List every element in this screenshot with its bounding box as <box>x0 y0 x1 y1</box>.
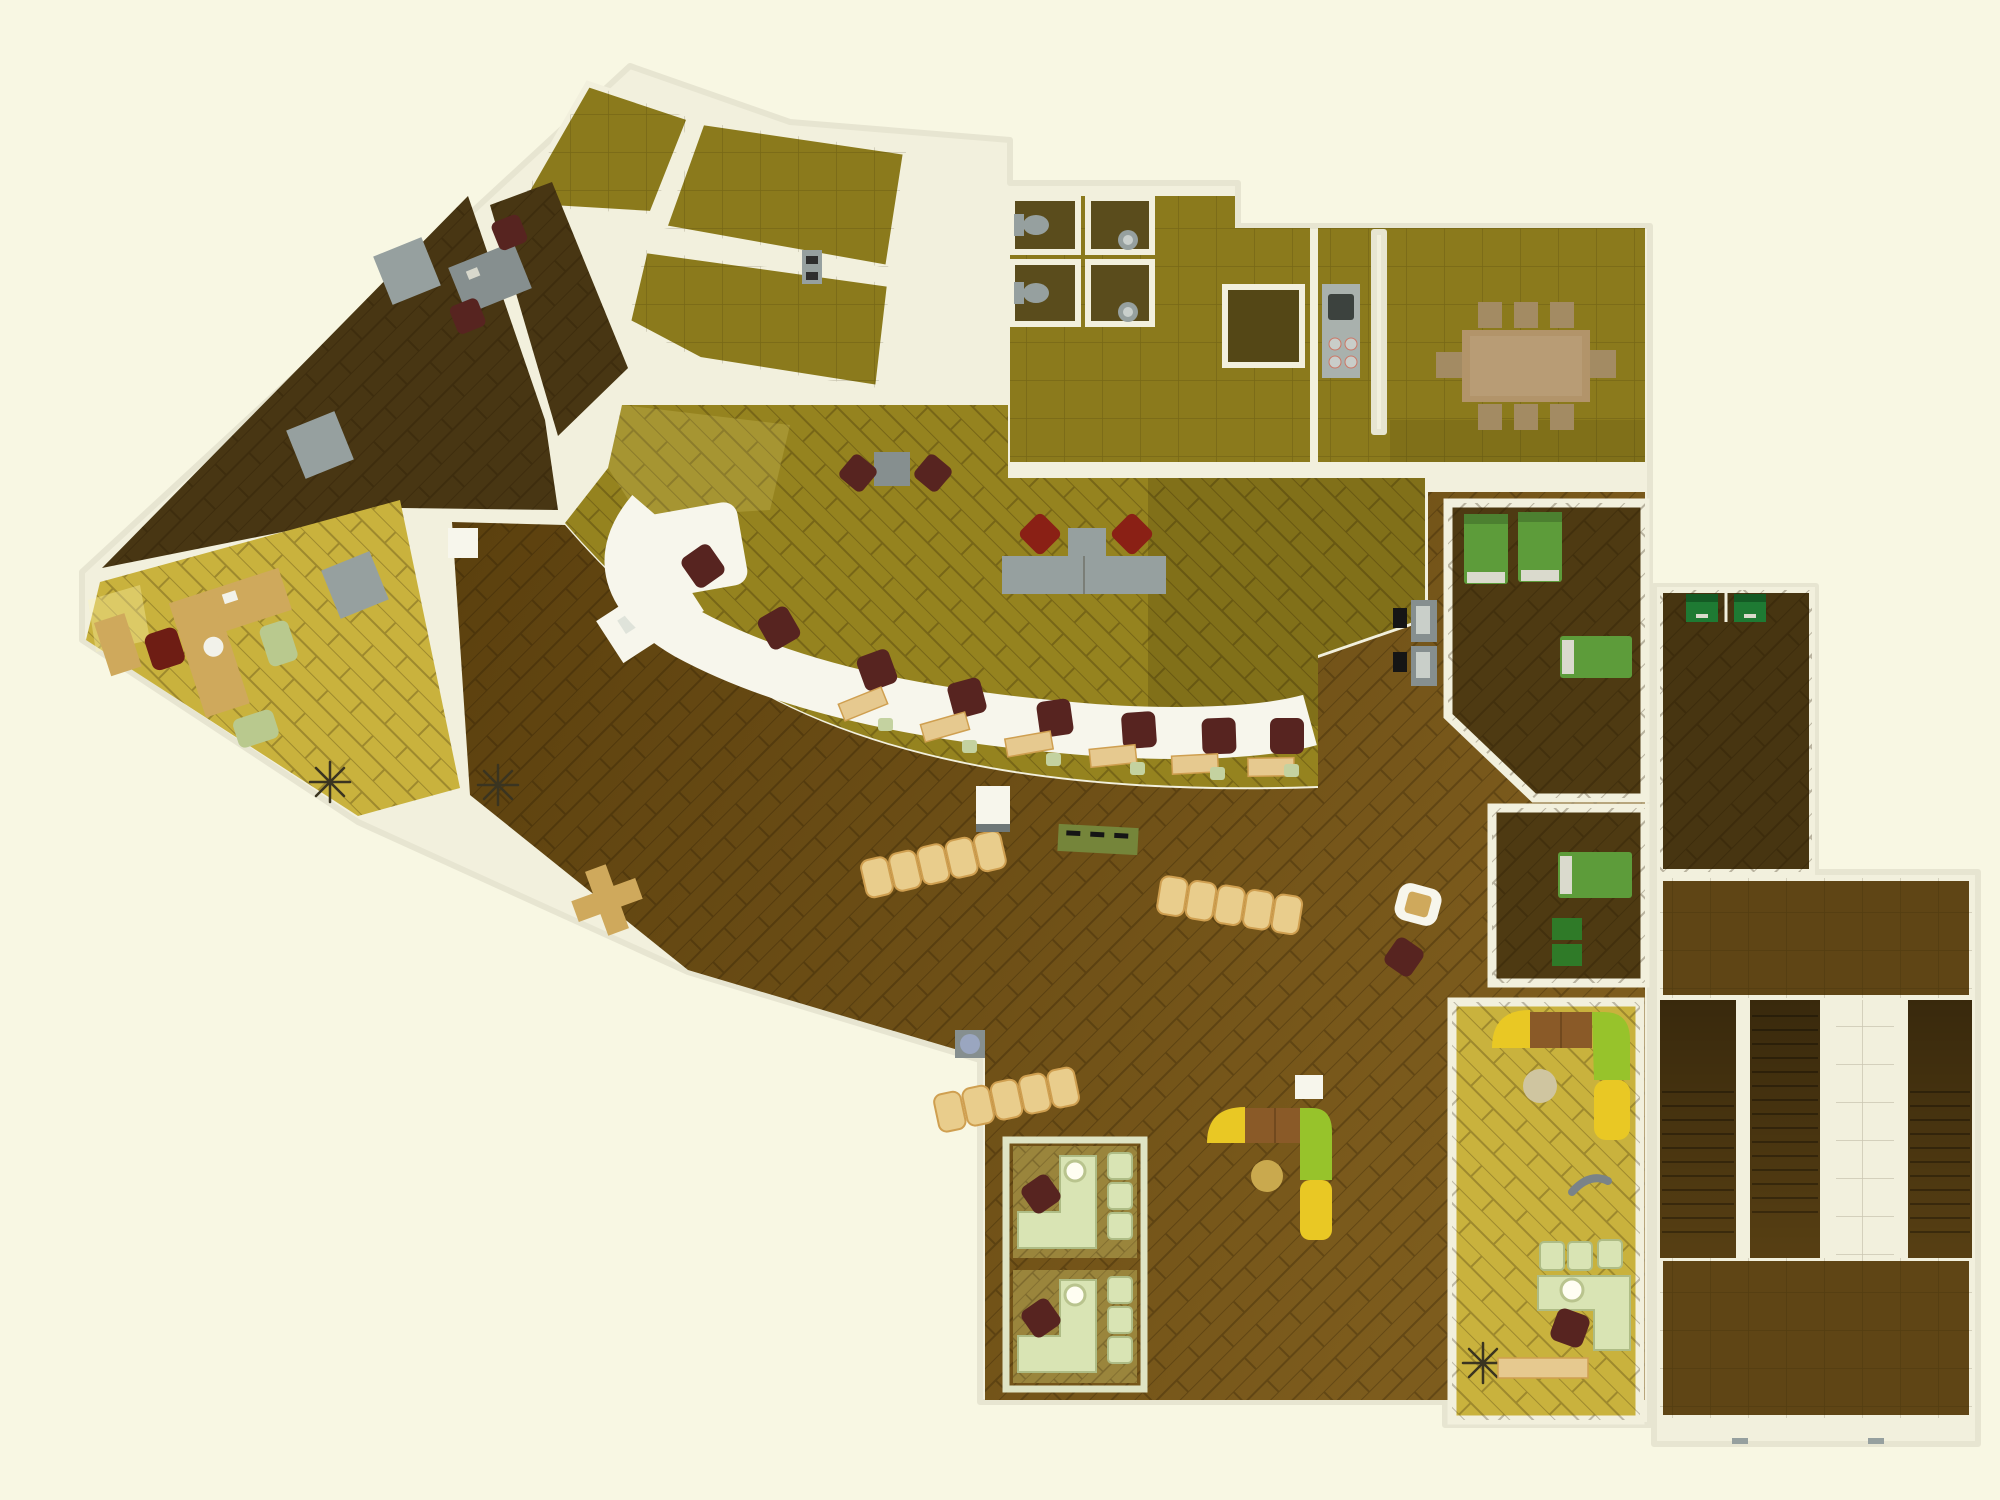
lobby-pillar-base <box>976 824 1010 832</box>
console-slot-3 <box>1114 833 1128 839</box>
sink-icon-1 <box>1118 230 1138 250</box>
bench-seat <box>1271 893 1304 935</box>
client-stool-5 <box>1210 767 1225 780</box>
annex-door-mark-2 <box>1868 1438 1884 1444</box>
cubicle-2-guest-chair-2 <box>1108 1307 1132 1333</box>
lounge-desk-lamp-icon <box>1561 1279 1583 1301</box>
manager-cabinet <box>874 452 910 486</box>
lobby-sofa-yellow-run <box>1300 1180 1332 1240</box>
teller-chair-6 <box>1121 711 1157 749</box>
bench-seat <box>1185 880 1218 922</box>
supervisor-table-stem <box>1068 528 1106 558</box>
study-desk-2 <box>1734 594 1766 622</box>
bench-seat <box>1156 875 1189 917</box>
conference-chair-top-3 <box>1550 302 1574 328</box>
bench-seat <box>1213 884 1246 926</box>
conference-chair-bottom-2 <box>1514 404 1538 430</box>
bed-icon-3 <box>1560 636 1632 678</box>
conference-chair-top-1 <box>1478 302 1502 328</box>
cubicle-1-guest-chair-2 <box>1108 1183 1132 1209</box>
bench-seat <box>1242 889 1275 931</box>
sink-icon-2 <box>1118 302 1138 322</box>
toilet-icon-1 <box>1014 214 1049 236</box>
teller-chair-7 <box>1201 717 1236 754</box>
stair-left-shade <box>1660 1000 1736 1258</box>
stair-hall-top-tiles <box>1660 878 1972 998</box>
elevator-slot-1 <box>806 256 818 264</box>
wing-pillar <box>448 528 478 558</box>
elevator-slot-2 <box>806 272 818 280</box>
office-plant-icon <box>310 762 350 802</box>
lounge-bench <box>1498 1358 1588 1378</box>
lounge-guest-chair-1 <box>1540 1242 1564 1270</box>
lounge-sofa-yellow-run <box>1594 1080 1630 1140</box>
bed-icon-2 <box>1518 512 1562 582</box>
lobby-plant-icon <box>478 765 518 805</box>
client-panel-4 <box>1089 745 1137 768</box>
lounge-sofa-green-corner <box>1592 1012 1630 1080</box>
stair-mid-landing <box>1836 1000 1894 1258</box>
cubicle-2-guest-chair-3 <box>1108 1337 1132 1363</box>
conference-chair-left <box>1436 352 1462 378</box>
vending-mat-1 <box>1393 608 1407 628</box>
cubicle-1-lamp-icon <box>1065 1161 1085 1181</box>
kitchen-divider-wall <box>1374 232 1384 432</box>
stair-hall-bottom-tiles <box>1660 1258 1972 1418</box>
study-room-tiles <box>1660 590 1812 872</box>
brochure-console <box>1057 824 1138 855</box>
lobby-sofa-green-corner <box>1300 1108 1332 1180</box>
console-slot-2 <box>1090 832 1104 838</box>
study-desk-1 <box>1686 594 1718 622</box>
conference-chair-bottom-1 <box>1478 404 1502 430</box>
bed-icon-1 <box>1464 514 1508 584</box>
conference-chair-bottom-3 <box>1550 404 1574 430</box>
rest-seat-1 <box>1552 918 1582 940</box>
kitchen-sink-icon <box>1328 294 1354 320</box>
vending-window-2 <box>1416 652 1430 678</box>
client-stool-1 <box>878 718 893 731</box>
bed-icon-4 <box>1558 852 1632 898</box>
stair-right-shade <box>1908 1000 1972 1258</box>
client-stool-3 <box>1046 753 1061 766</box>
annex-door-mark-1 <box>1732 1438 1748 1444</box>
lobby-round-table <box>1251 1160 1283 1192</box>
lounge-plant-icon <box>1463 1343 1503 1383</box>
conference-table-top <box>1470 336 1582 396</box>
waste-bin <box>955 1030 985 1058</box>
conference-chair-top-2 <box>1514 302 1538 328</box>
cubicle-1-guest-chair-3 <box>1108 1213 1132 1239</box>
client-stool-2 <box>962 740 977 753</box>
lounge-coffee-table <box>1523 1069 1557 1103</box>
console-slot-1 <box>1066 830 1080 836</box>
lobby-pillar <box>976 786 1010 830</box>
client-stool-4 <box>1130 762 1145 775</box>
cubicle-2-guest-chair-1 <box>1108 1277 1132 1303</box>
floorplan-render <box>0 0 2000 1500</box>
toilet-icon-2 <box>1014 282 1049 304</box>
kitchenette <box>1322 284 1360 378</box>
floorplan-stage: Top-down 3D rendered floor plan of an of… <box>0 0 2000 1500</box>
lounge-guest-chair-3 <box>1598 1240 1622 1268</box>
client-stool-6 <box>1284 764 1299 777</box>
lounge-guest-chair-2 <box>1568 1242 1592 1270</box>
rest-seat-2 <box>1552 944 1582 966</box>
vending-window-1 <box>1416 606 1430 634</box>
study-room-furniture <box>1686 590 1766 622</box>
teller-chair-8 <box>1270 718 1304 754</box>
conference-chair-right <box>1590 350 1616 378</box>
cubicle-2-lamp-icon <box>1065 1285 1085 1305</box>
lobby-corner-pillar <box>1295 1075 1323 1099</box>
vending-mat-2 <box>1393 652 1407 672</box>
storage-inset-room-floor <box>1225 287 1302 365</box>
cubicle-1-guest-chair-1 <box>1108 1153 1132 1179</box>
